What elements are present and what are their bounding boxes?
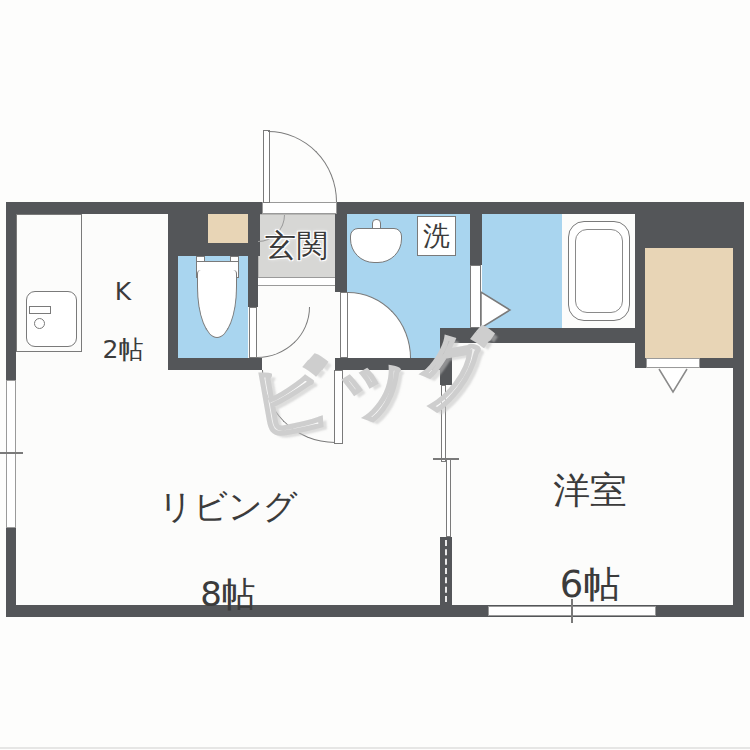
wall-closet-top-block bbox=[645, 214, 733, 248]
entry-door-swing-icon bbox=[268, 131, 337, 202]
wall-bath-right bbox=[635, 214, 645, 343]
living-size: 8帖 bbox=[108, 572, 348, 616]
wall-top bbox=[6, 202, 744, 214]
western-room-size: 6帖 bbox=[480, 561, 700, 608]
entrance-label: 玄関 bbox=[255, 226, 339, 265]
bathtub-inner-line bbox=[575, 229, 623, 313]
bottom-edge-line bbox=[0, 747, 750, 749]
entry-door-sill bbox=[262, 202, 337, 214]
sliding-door-tick bbox=[433, 458, 459, 460]
window-left-icon bbox=[6, 380, 16, 528]
western-room-label: 洋室 6帖 bbox=[480, 420, 700, 655]
living-label: リビング 8帖 bbox=[108, 440, 348, 660]
floorplan-canvas: 洗 K 2帖 玄関 リビング 8帖 洋室 6帖 ビッグ bbox=[0, 0, 750, 750]
kitchen-size: 2帖 bbox=[63, 335, 183, 364]
closet-opening bbox=[646, 358, 700, 368]
laundry-box: 洗 bbox=[417, 216, 456, 256]
kitchen-faucet-icon bbox=[29, 306, 51, 314]
window-left-tick bbox=[0, 452, 23, 454]
wall-washroom-bath bbox=[470, 214, 482, 265]
entrance-step bbox=[258, 277, 336, 286]
kitchen-name: K bbox=[63, 277, 183, 306]
laundry-label: 洗 bbox=[423, 219, 450, 253]
kitchen-drain-icon bbox=[34, 318, 45, 329]
living-name: リビング bbox=[108, 484, 348, 528]
western-room-name: 洋室 bbox=[480, 467, 700, 514]
kitchen-label: K 2帖 bbox=[63, 248, 183, 393]
wall-closet-left bbox=[635, 343, 645, 368]
wall-lower-dash-line bbox=[445, 540, 447, 602]
shoe-cabinet-icon bbox=[208, 214, 248, 243]
sliding-door-icon-lower bbox=[446, 458, 451, 537]
wall-right bbox=[733, 202, 744, 617]
closet-floor bbox=[645, 248, 733, 358]
